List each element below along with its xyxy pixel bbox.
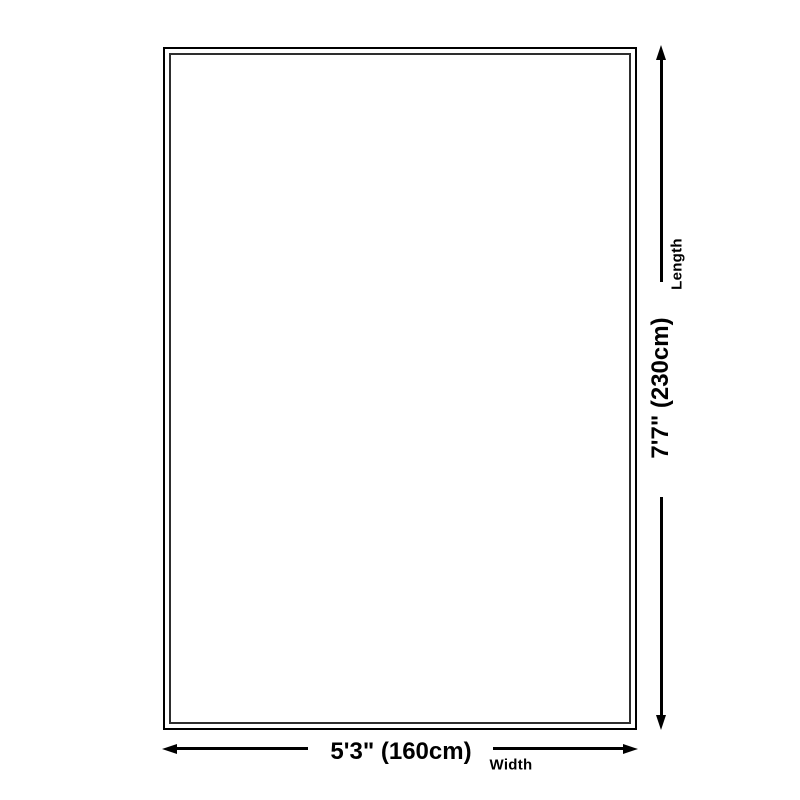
width-value: 5'3" (160cm): [330, 740, 471, 764]
dimension-diagram: Length 7'7" (230cm) 5'3" (160cm) Width: [0, 0, 800, 800]
width-line-left: [175, 747, 308, 750]
length-value: 7'7" (230cm): [649, 317, 673, 458]
arrow-right-icon: [623, 744, 638, 754]
width-line-right: [493, 747, 624, 750]
rug-outline: [163, 47, 637, 730]
length-line-top: [660, 58, 663, 282]
length-label: Length: [670, 238, 685, 290]
length-line-bottom: [660, 497, 663, 717]
arrow-down-icon: [656, 715, 666, 730]
rug-inner-border: [169, 53, 631, 724]
width-label: Width: [489, 758, 532, 773]
